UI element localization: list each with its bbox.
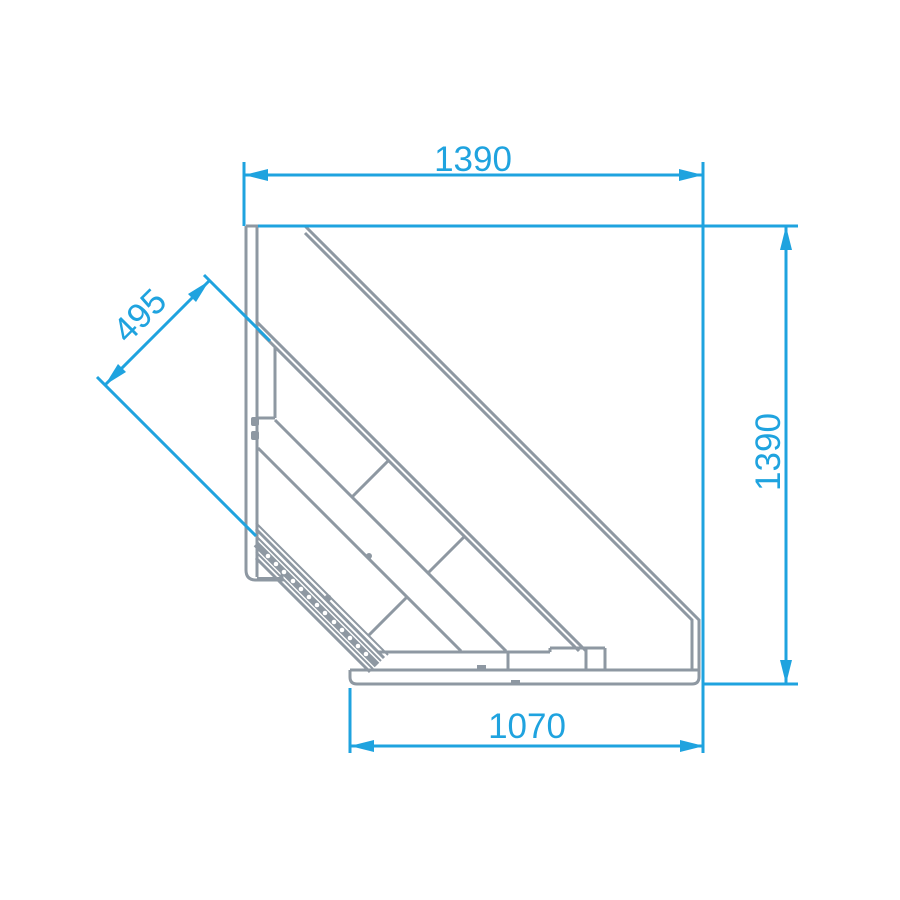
structure-outline: [246, 226, 700, 684]
shelf-bracket: [257, 347, 275, 418]
dim-bottom-arrow-left: [350, 740, 374, 752]
air-grille-band: [256, 523, 388, 672]
drawing-page: 1390 1390 495 1070: [0, 0, 900, 900]
dimension-depth: 495: [97, 275, 270, 536]
grille-line-5: [256, 523, 388, 655]
dimension-top-label: 1390: [434, 140, 512, 179]
panel-clip-lower: [251, 431, 259, 440]
dimension-bottom: 1070: [350, 688, 704, 753]
dim-right-arrow-top: [780, 226, 792, 250]
strut-middle: [428, 537, 464, 573]
glass-front-inner: [305, 233, 692, 670]
dim-top-arrow-left: [244, 169, 268, 181]
grille-line-3: [256, 536, 381, 661]
dim-bottom-arrow-right: [680, 740, 704, 752]
grille-line-1: [256, 558, 370, 672]
strut-lower: [368, 597, 407, 636]
dimension-depth-label: 495: [105, 281, 174, 350]
grille-line-2: [256, 552, 373, 669]
dimension-right-label: 1390: [749, 413, 788, 491]
strut-upper: [352, 461, 388, 497]
dim-depth-ext-upper: [204, 275, 270, 341]
base-plate: [350, 670, 699, 684]
dim-top-arrow-right: [679, 169, 703, 181]
screw-dot-2: [366, 553, 372, 559]
shelf-band-d: [258, 448, 461, 651]
dim-depth-ext-lower: [97, 377, 256, 536]
grille-line-4: [256, 529, 384, 658]
under-shelf-rail: [377, 648, 605, 684]
dimension-bottom-label: 1070: [488, 707, 566, 746]
rail-line: [377, 648, 605, 652]
back-panel-outer: [246, 226, 282, 580]
technical-drawing-canvas: 1390 1390 495 1070: [0, 0, 900, 900]
dim-right-arrow-bottom: [780, 660, 792, 684]
